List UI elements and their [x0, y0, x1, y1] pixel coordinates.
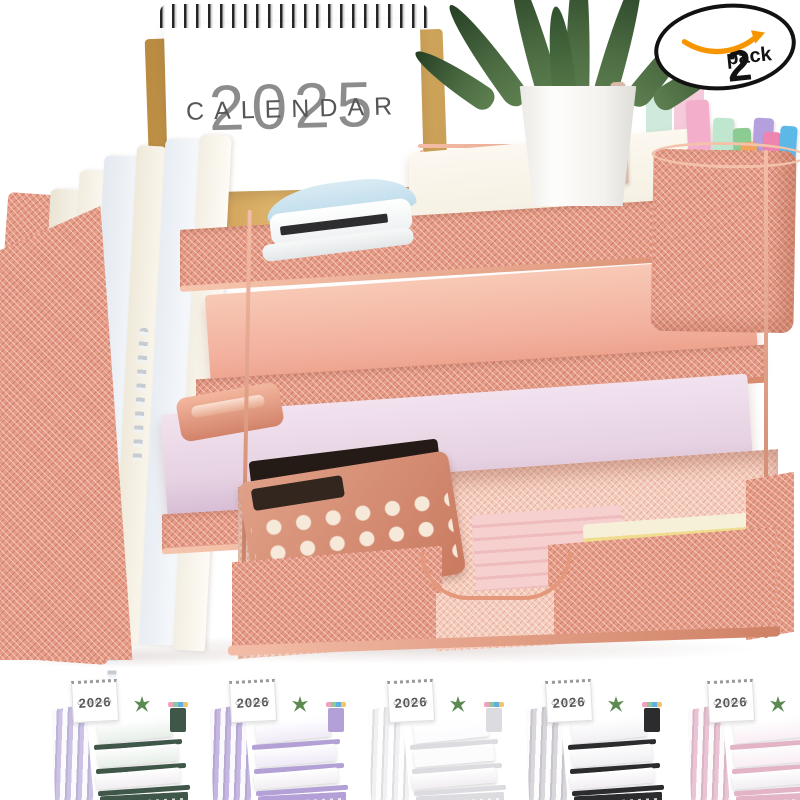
- variant-plant: [134, 696, 150, 712]
- variant-thumbnail-pink: 2026 CALENDAR: [684, 676, 800, 800]
- variant-thumbnail-purple: 2026 CALENDAR: [206, 676, 354, 800]
- variant-calendar: 2026 CALENDAR: [387, 679, 435, 723]
- variant-organizer-body: [730, 712, 800, 800]
- variant-calendar: 2026 CALENDAR: [229, 679, 277, 723]
- pen-cup: [650, 149, 796, 333]
- variant-pen-cup: [328, 708, 344, 732]
- variant-calendar: 2026 CALENDAR: [707, 679, 755, 723]
- calendar-label: CALENDAR: [186, 92, 403, 127]
- variant-calendar: 2026 CALENDAR: [71, 679, 119, 723]
- drawer-front-right: [548, 527, 776, 643]
- variant-calendar: 2026 CALENDAR: [545, 679, 593, 723]
- variant-pen-cup: [644, 708, 660, 732]
- variant-thumbnail-black: 2026 CALENDAR: [522, 676, 670, 800]
- variant-thumbnail-white: 2026 CALENDAR: [364, 676, 512, 800]
- drawer-scoop-handle: [420, 552, 572, 600]
- variant-plant: [292, 696, 308, 712]
- spiral-binding: [160, 4, 428, 28]
- variant-thumbnail-dark-green: 2026 CALENDAR: [48, 676, 196, 800]
- variant-plant: [770, 696, 786, 712]
- plant-pot: [516, 86, 640, 206]
- variant-pen-cup: [170, 708, 186, 732]
- product-photo: 2025 CALENDAR: [0, 0, 800, 800]
- stapler: [260, 176, 432, 264]
- variant-plant: [608, 696, 624, 712]
- variant-pen-cup: [486, 708, 502, 732]
- variant-plant: [450, 696, 466, 712]
- drawer-front-left: [232, 546, 442, 655]
